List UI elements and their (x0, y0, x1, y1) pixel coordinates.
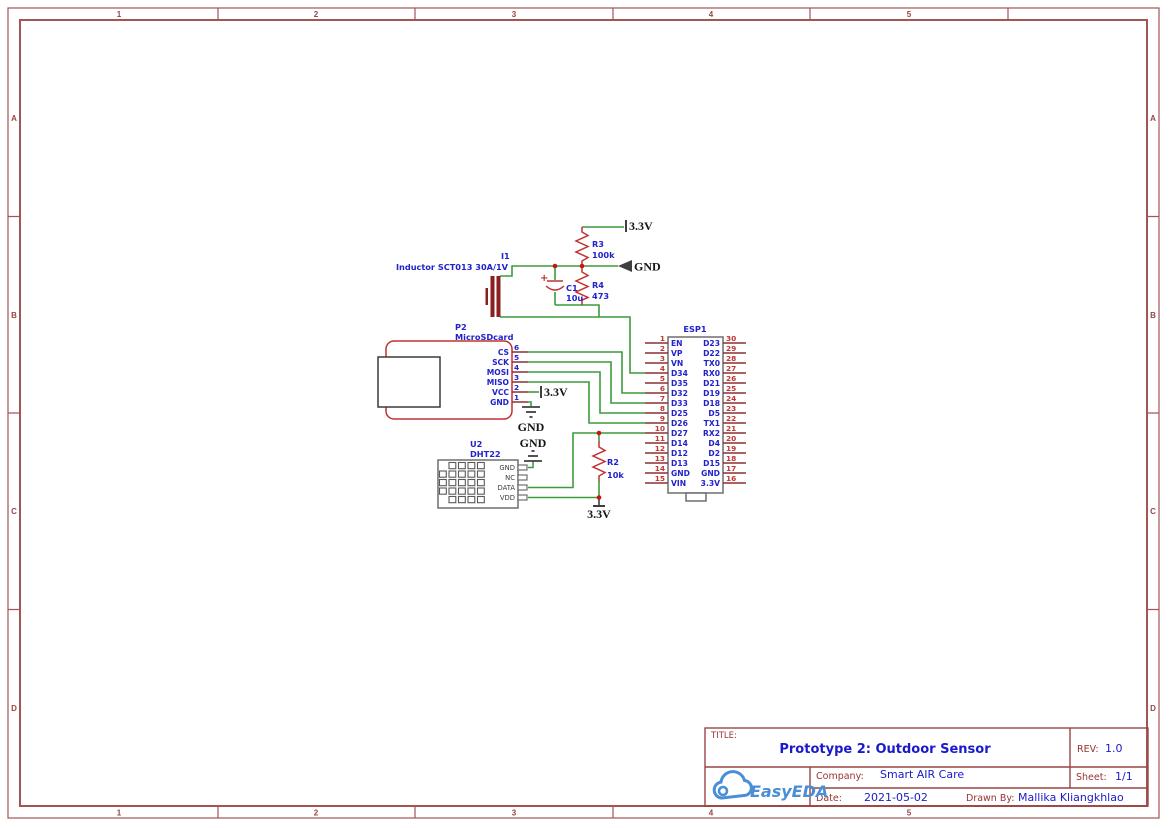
esp-pin-name: EN (671, 339, 683, 348)
frame-col-label: 3 (512, 10, 517, 19)
frame-col-label: 3 (512, 809, 517, 818)
esp-pin-name: 3.3V (701, 479, 720, 488)
frame-column-ticks-top (218, 8, 1008, 20)
esp-pin-number: 8 (660, 404, 665, 413)
r3-ref: R3 (592, 239, 604, 249)
sdcard-pin-number: 1 (514, 393, 519, 402)
esp-pin-name: D19 (703, 389, 720, 398)
esp-pin-name: RX0 (703, 369, 720, 378)
sdcard-pin-number: 5 (514, 353, 519, 362)
sdcard-pin-name: SCK (492, 358, 510, 367)
esp-pin-number: 30 (726, 334, 736, 343)
esp-pin-number: 18 (726, 454, 736, 463)
inductor-core-bar (497, 276, 501, 317)
c1-value: 10u (566, 293, 583, 303)
esp-pin-number: 14 (655, 464, 665, 473)
esp-pin-name: RX2 (703, 429, 720, 438)
esp-pin-name: D15 (703, 459, 720, 468)
esp-pin-name: D32 (671, 389, 688, 398)
net-flags: GND 3.3V 3.3V GND GND 3.3V (518, 219, 661, 521)
esp-pin-name: D14 (671, 439, 688, 448)
esp-pin-name: D33 (671, 399, 688, 408)
esp-pin-name: TX1 (704, 419, 720, 428)
dht22-pin-name: NC (505, 474, 515, 482)
company-value: Smart AIR Care (880, 768, 964, 781)
frame-row-label: B (11, 311, 17, 320)
inductor-name: Inductor SCT013 30A/1V (396, 262, 509, 272)
frame-col-label: 2 (314, 10, 319, 19)
esp-pin-number: 24 (726, 394, 736, 403)
component-inductor-i1[interactable]: I1 Inductor SCT013 30A/1V (396, 251, 510, 317)
esp-pin-name: VIN (671, 479, 686, 488)
esp-pin-name: D22 (703, 349, 720, 358)
wire-c1r4-bottom-join (555, 305, 599, 317)
frame-col-label: 5 (907, 809, 912, 818)
frame-column-ticks-bottom (218, 806, 613, 818)
esp-ref: ESP1 (683, 324, 706, 334)
esp-pin-name: D25 (671, 409, 688, 418)
r4-ref: R4 (592, 280, 604, 290)
dht22-pin-nubs (518, 465, 527, 500)
frame-inner-border (20, 20, 1147, 806)
esp-pin-name: D27 (671, 429, 688, 438)
sdcard-ref: P2 (455, 322, 467, 332)
resistor-symbol (593, 441, 605, 481)
sdcard-pin-name: VCC (492, 388, 509, 397)
sdcard-pin-number: 4 (514, 363, 519, 372)
frame-row-label: D (1150, 704, 1156, 713)
esp-pin-name: TX0 (704, 359, 720, 368)
esp-pin-number: 5 (660, 374, 665, 383)
wire-sd-gnd (528, 402, 531, 406)
esp-pin-number: 12 (655, 444, 665, 453)
sdcard-pin-name: MOSI (487, 368, 509, 377)
r2-value: 10k (607, 470, 624, 480)
esp-pin-number: 29 (726, 344, 736, 353)
frame-row-label: D (11, 704, 17, 713)
sdcard-pin-name: CS (498, 348, 509, 357)
gnd-flag-label: GND (518, 420, 545, 434)
capacitor-curved-plate (546, 286, 564, 290)
esp-pin-name: D12 (671, 449, 688, 458)
esp-pin-number: 22 (726, 414, 736, 423)
esp-pin-name: D18 (703, 399, 720, 408)
frame-row-label: B (1150, 311, 1156, 320)
easyeda-logo-text: EasyEDA (750, 782, 828, 801)
junction-dot (597, 431, 602, 436)
esp-pin-number: 21 (726, 424, 736, 433)
component-dht22-u2[interactable]: U2 DHT22 GND NC DATA VDD (438, 439, 527, 508)
esp-pin-name: D5 (708, 409, 720, 418)
frame-col-label: 2 (314, 809, 319, 818)
frame-row-ticks-right (1147, 217, 1159, 610)
esp-pin-number: 23 (726, 404, 736, 413)
sdcard-pin-number: 3 (514, 373, 519, 382)
drawn-by-label: Drawn By: (966, 793, 1015, 804)
frame-col-label: 4 (709, 809, 714, 818)
r3-value: 100k (592, 250, 615, 260)
r2-ref: R2 (607, 457, 619, 467)
v33-flag-label: 3.3V (544, 385, 568, 399)
esp-pin-number: 19 (726, 444, 736, 453)
frame-col-label: 5 (907, 10, 912, 19)
esp-pin-number: 9 (660, 414, 665, 423)
esp-pin-number: 15 (655, 474, 665, 483)
esp-pin-number: 4 (660, 364, 665, 373)
dht22-pin-name: VDD (500, 494, 515, 502)
esp-pin-number: 2 (660, 344, 665, 353)
sdcard-pin-number: 6 (514, 343, 519, 352)
esp-pin-name: GND (671, 469, 690, 478)
component-esp32-esp1[interactable]: ESP1 EN VP VN D34 D35 D32 D33 D25 D26 D2… (645, 324, 746, 501)
esp-pin-number: 27 (726, 364, 736, 373)
date-value: 2021-05-02 (864, 791, 928, 804)
esp-pin-name: D35 (671, 379, 688, 388)
esp-pin-number: 7 (660, 394, 665, 403)
component-r3[interactable]: R3 100k (576, 227, 615, 266)
inductor-ref: I1 (501, 251, 510, 261)
junction-dot (597, 495, 602, 500)
dht22-pin-name: DATA (497, 484, 515, 492)
earth-ground-icon (524, 451, 542, 461)
esp-pin-number: 3 (660, 354, 665, 363)
r4-value: 473 (592, 291, 609, 301)
frame-row-label: C (11, 507, 17, 516)
v33-flag-label: 3.3V (629, 219, 653, 233)
sdcard-pin-name: MISO (487, 378, 510, 387)
esp-pin-number: 25 (726, 384, 736, 393)
drawn-by-value: Mallika Kliangkhlao (1018, 791, 1124, 804)
esp-pin-name: D4 (708, 439, 720, 448)
frame-col-label: 4 (709, 10, 714, 19)
title-block: TITLE: Prototype 2: Outdoor Sensor REV: … (705, 728, 1148, 806)
frame-col-label: 1 (117, 10, 122, 19)
dht22-ref: U2 (470, 439, 482, 449)
esp-pin-name: D34 (671, 369, 688, 378)
rev-value: 1.0 (1105, 742, 1123, 755)
component-sdcard-p2[interactable]: P2 MicroSDcard CS SCK MOSI MISO VCC GND … (378, 322, 528, 419)
title-label: TITLE: (710, 731, 737, 741)
esp-pin-name: GND (701, 469, 720, 478)
component-r2[interactable]: R2 10k (593, 441, 624, 481)
wire-dht-gnd (528, 461, 533, 468)
esp-pin-name: D13 (671, 459, 688, 468)
frame-row-label: C (1150, 507, 1156, 516)
v33-flag-label: 3.3V (587, 507, 611, 521)
sheet-label: Sheet: (1076, 772, 1107, 783)
esp-pin-number: 13 (655, 454, 665, 463)
c1-polarity: + (540, 273, 548, 284)
easyeda-logo: EasyEDA (714, 772, 828, 801)
esp-pin-number: 20 (726, 434, 736, 443)
esp-pin-number: 26 (726, 374, 736, 383)
dht22-pin-name: GND (499, 464, 515, 472)
gnd-flag-label: GND (520, 436, 547, 450)
esp-pin-name: D2 (708, 449, 720, 458)
dht22-name: DHT22 (470, 449, 501, 459)
gnd-arrow-icon (618, 260, 632, 272)
esp-pin-number: 6 (660, 384, 665, 393)
rev-label: REV: (1077, 744, 1099, 755)
sdcard-slot (378, 357, 440, 407)
frame-outer-border (8, 8, 1159, 818)
junction-dot (580, 264, 585, 269)
component-c1[interactable]: + C1 10u (540, 273, 583, 303)
frame-col-label: 1 (117, 809, 122, 818)
esp-pin-name: VP (671, 349, 683, 358)
esp-pin-number: 17 (726, 464, 736, 473)
esp-usb-tab (686, 493, 706, 501)
sheet-frame: 1 2 3 4 5 1 2 3 4 5 A B C D A B C D (8, 8, 1159, 818)
inductor-core-bar (486, 288, 489, 305)
sdcard-name: MicroSDcard (455, 332, 514, 342)
sdcard-pin-number: 2 (514, 383, 519, 392)
esp-pin-number: 11 (655, 434, 665, 443)
resistor-symbol (576, 227, 588, 266)
frame-row-label: A (1150, 114, 1156, 123)
company-label: Company: (816, 771, 864, 782)
junction-dot (553, 264, 558, 269)
schematic-title: Prototype 2: Outdoor Sensor (779, 742, 991, 757)
inductor-core-bar (491, 276, 495, 317)
esp-pin-number: 28 (726, 354, 736, 363)
esp-pin-number: 1 (660, 334, 665, 343)
earth-ground-icon (522, 407, 540, 417)
frame-row-label: A (11, 114, 17, 123)
esp-pin-name: D23 (703, 339, 720, 348)
wire-ct-bottom-to-d34 (500, 317, 645, 373)
c1-ref: C1 (566, 283, 578, 293)
sdcard-pin-name: GND (490, 398, 509, 407)
esp-pin-number: 10 (655, 424, 665, 433)
esp-pin-number: 16 (726, 474, 736, 483)
esp-pin-name: D26 (671, 419, 688, 428)
frame-row-ticks-left (8, 217, 20, 610)
esp-pin-name: VN (671, 359, 683, 368)
wire-ct-top-to-gnd (500, 266, 618, 276)
sheet-value: 1/1 (1115, 770, 1133, 783)
esp-pin-name: D21 (703, 379, 720, 388)
gnd-flag-label: GND (634, 260, 661, 274)
